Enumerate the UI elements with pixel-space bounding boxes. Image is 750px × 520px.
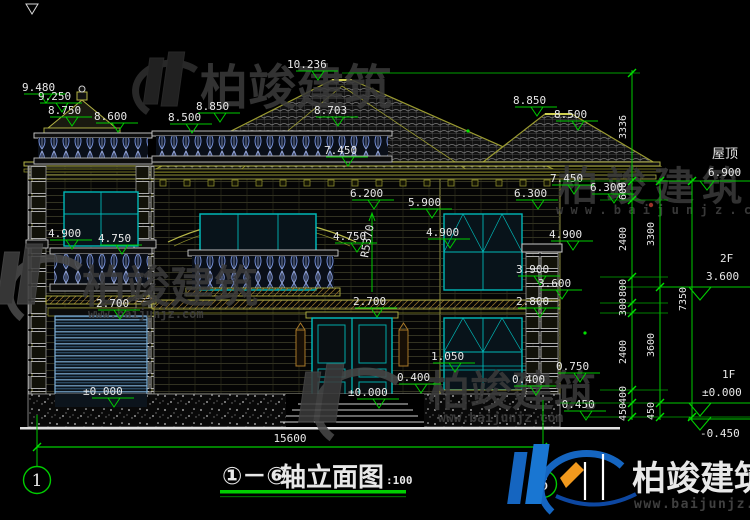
svg-text:1.050: 1.050 (431, 350, 464, 363)
svg-text:7.450: 7.450 (550, 172, 583, 185)
axis-bubble-1: 1 (24, 467, 51, 494)
svg-text:2400: 2400 (618, 227, 629, 251)
svg-text:0.750: 0.750 (556, 360, 589, 373)
svg-text:3.600: 3.600 (538, 277, 571, 290)
svg-text:www.baijunjz.com: www.baijunjz.com (438, 411, 563, 426)
drawing-canvas: 柏竣建筑 柏竣建筑 w w w . b a i j u n j z . c o … (0, 0, 750, 520)
brand-logo-block: 柏竣建筑 www.baijunjz.com (507, 444, 750, 512)
svg-text:400: 400 (618, 386, 629, 404)
watermark-top: 柏竣建筑 (136, 52, 392, 116)
svg-text:6.200: 6.200 (350, 187, 383, 200)
svg-text:0.400: 0.400 (512, 373, 545, 386)
left-parapet-balustrade (34, 133, 152, 164)
svg-text:3.900: 3.900 (516, 263, 549, 276)
svg-text:9.250: 9.250 (38, 90, 71, 103)
brand-logo-text: 柏竣建筑 (632, 459, 750, 499)
svg-text:1: 1 (32, 471, 43, 491)
svg-text:8.750: 8.750 (48, 104, 81, 117)
svg-text:3.600: 3.600 (706, 270, 739, 283)
svg-text:1F: 1F (722, 368, 735, 381)
svg-text:450: 450 (646, 402, 657, 420)
chain-c-labels: 7350 (678, 287, 689, 311)
svg-text:6.300: 6.300 (514, 187, 547, 200)
svg-text:6.900: 6.900 (708, 166, 741, 179)
svg-text:8.703: 8.703 (314, 104, 347, 117)
svg-text:4.750: 4.750 (333, 230, 366, 243)
svg-text:±0.000: ±0.000 (348, 386, 388, 399)
svg-text:±0.000: ±0.000 (702, 386, 742, 399)
svg-text:5.900: 5.900 (408, 196, 441, 209)
svg-text:3300: 3300 (646, 222, 657, 246)
svg-text:8.500: 8.500 (554, 108, 587, 121)
svg-text:屋顶: 屋顶 (712, 147, 738, 162)
svg-text:8.850: 8.850 (196, 100, 229, 113)
title-underline (220, 490, 406, 494)
cad-elevation-drawing: 柏竣建筑 柏竣建筑 w w w . b a i j u n j z . c o … (0, 0, 750, 520)
svg-text:4.750: 4.750 (98, 232, 131, 245)
svg-text:-0.450: -0.450 (700, 427, 740, 440)
svg-text:4.900: 4.900 (426, 226, 459, 239)
title-scale: :100 (386, 474, 413, 487)
svg-text:4.900: 4.900 (48, 227, 81, 240)
svg-text:7.450: 7.450 (324, 144, 357, 157)
svg-text:8.850: 8.850 (513, 94, 546, 107)
title-name: 轴立面图 (280, 462, 384, 493)
svg-text:10.236: 10.236 (287, 58, 327, 71)
brand-logo-url: www.baijunjz.com (634, 497, 750, 512)
title-axes-range: ①－⑥ (222, 462, 287, 490)
svg-text:4.900: 4.900 (549, 228, 582, 241)
svg-text:2.800: 2.800 (516, 295, 549, 308)
svg-text:3600: 3600 (646, 333, 657, 357)
drawing-title: ①－⑥ 轴立面图 :100 (220, 462, 413, 497)
brand-logo-icon (507, 444, 636, 512)
svg-text:600: 600 (618, 182, 629, 200)
svg-text:2400: 2400 (618, 340, 629, 364)
svg-text:2.700: 2.700 (353, 295, 386, 308)
svg-text:2.700: 2.700 (96, 297, 129, 310)
svg-text:450: 450 (618, 403, 629, 421)
title-underline-thin (220, 496, 406, 497)
svg-text:7350: 7350 (678, 287, 689, 311)
svg-text:3336: 3336 (618, 115, 629, 139)
svg-text:2F: 2F (720, 252, 733, 265)
svg-text:800: 800 (618, 279, 629, 297)
svg-text:0.400: 0.400 (397, 371, 430, 384)
stray-triangle-glyph (26, 4, 38, 14)
right-wing-roof (478, 114, 660, 166)
svg-text:300: 300 (618, 298, 629, 316)
svg-text:8.600: 8.600 (94, 110, 127, 123)
chain-ticks (628, 69, 696, 421)
svg-text:-0.450: -0.450 (555, 398, 595, 411)
total-width-dim: 15600 (273, 432, 306, 445)
svg-text:±0.000: ±0.000 (83, 385, 123, 398)
